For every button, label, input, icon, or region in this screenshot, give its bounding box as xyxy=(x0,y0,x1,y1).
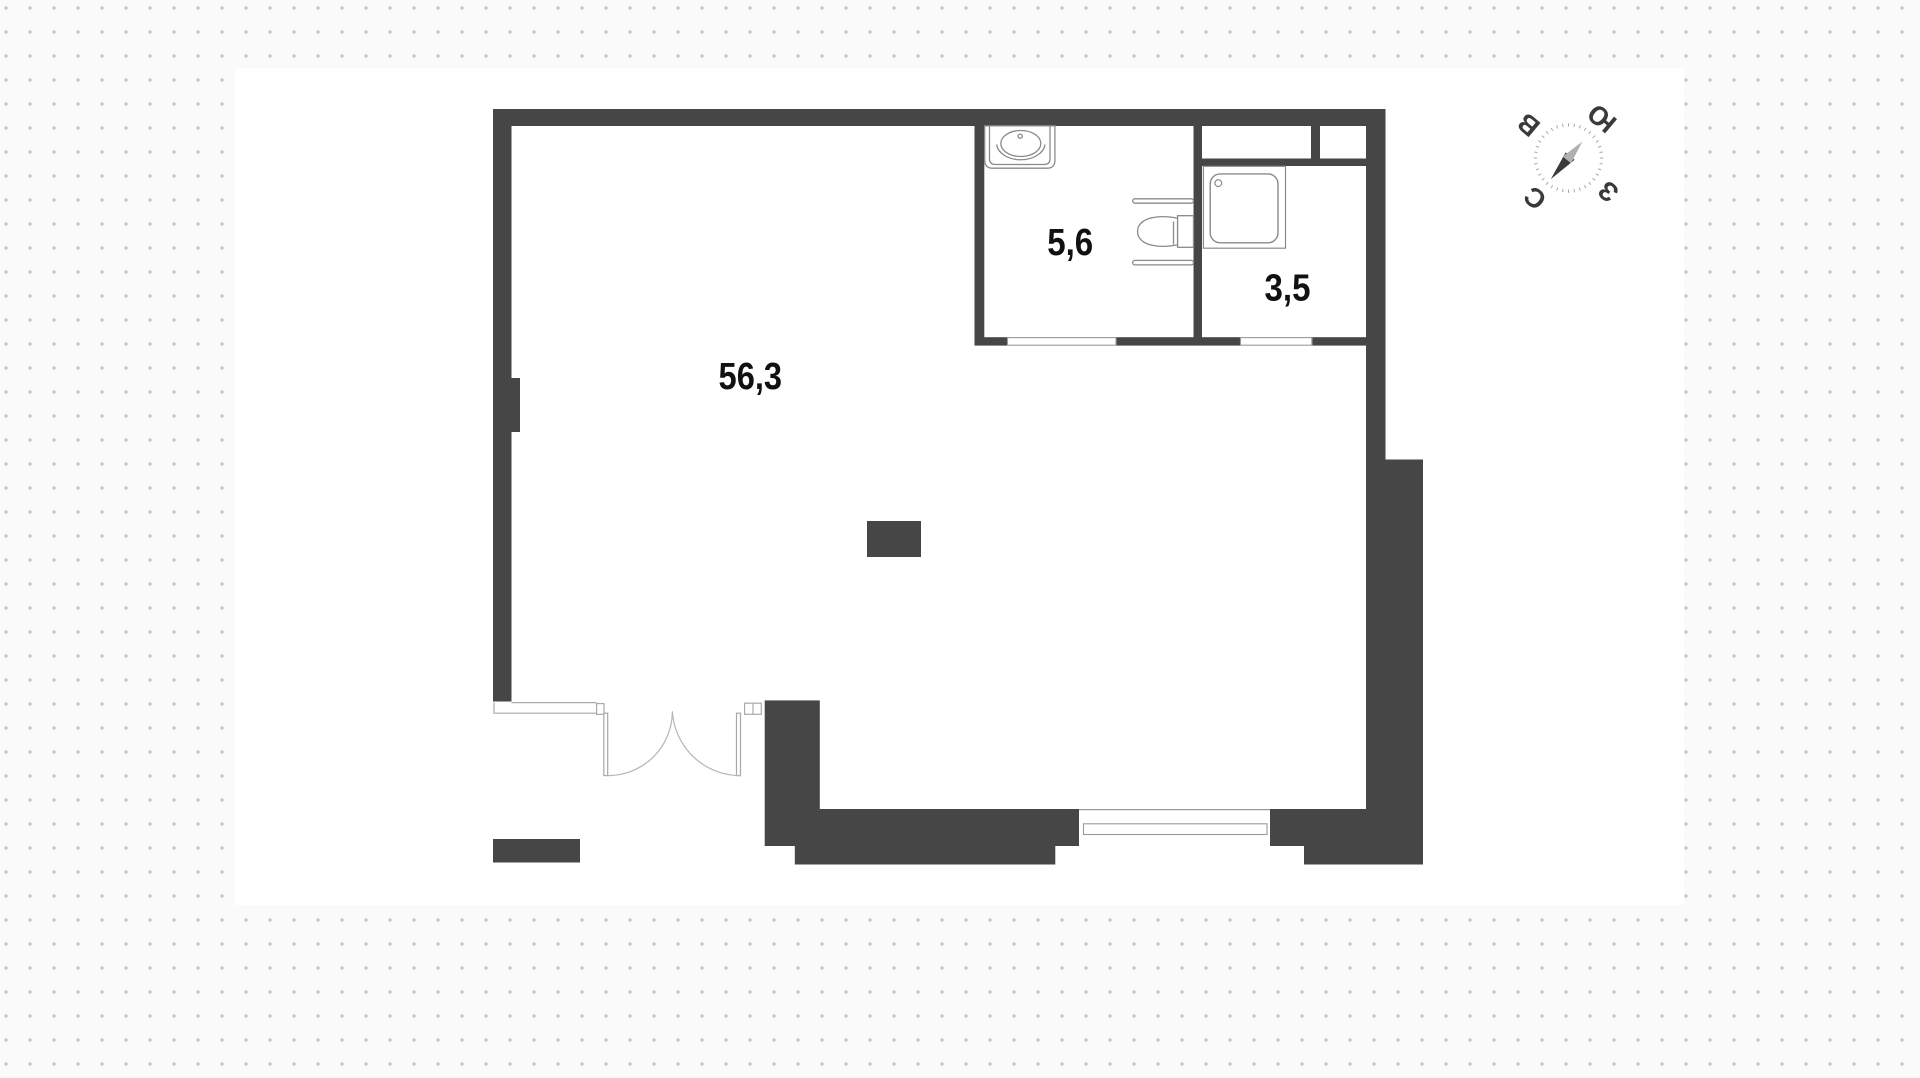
svg-text:56,3: 56,3 xyxy=(719,356,783,398)
svg-text:З: З xyxy=(1592,174,1624,208)
svg-text:3,5: 3,5 xyxy=(1265,268,1311,310)
svg-text:В: В xyxy=(1512,107,1546,143)
svg-text:Ю: Ю xyxy=(1582,98,1623,139)
svg-text:5,6: 5,6 xyxy=(1047,222,1093,264)
svg-text:С: С xyxy=(1518,180,1552,216)
